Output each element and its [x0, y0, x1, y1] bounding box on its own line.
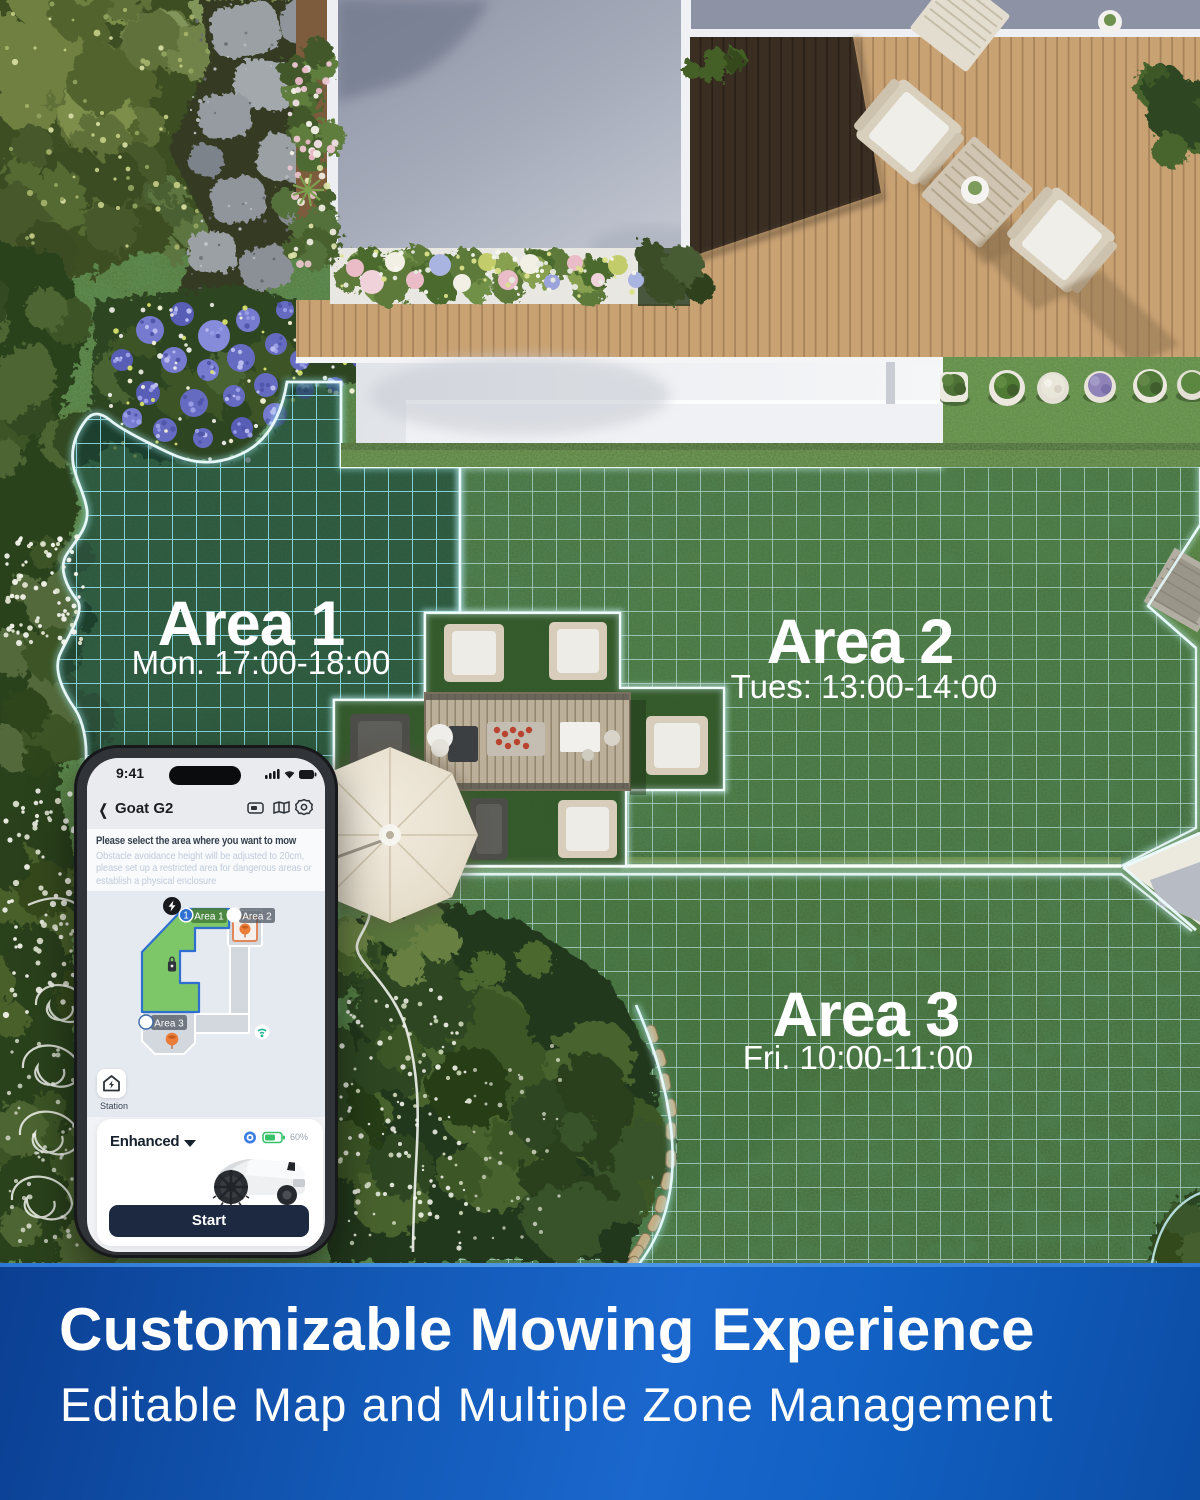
svg-text:Fri. 10:00-11:00: Fri. 10:00-11:00 — [743, 1039, 974, 1076]
svg-text:Mon. 17:00-18:00: Mon. 17:00-18:00 — [132, 644, 391, 681]
svg-text:Area 3: Area 3 — [154, 1019, 184, 1030]
svg-text:Area 2: Area 2 — [767, 607, 954, 677]
svg-text:Area 1: Area 1 — [194, 912, 224, 923]
svg-text:Area 2: Area 2 — [242, 912, 272, 923]
svg-text:Tues: 13:00-14:00: Tues: 13:00-14:00 — [731, 668, 998, 705]
svg-text:1: 1 — [183, 911, 189, 922]
